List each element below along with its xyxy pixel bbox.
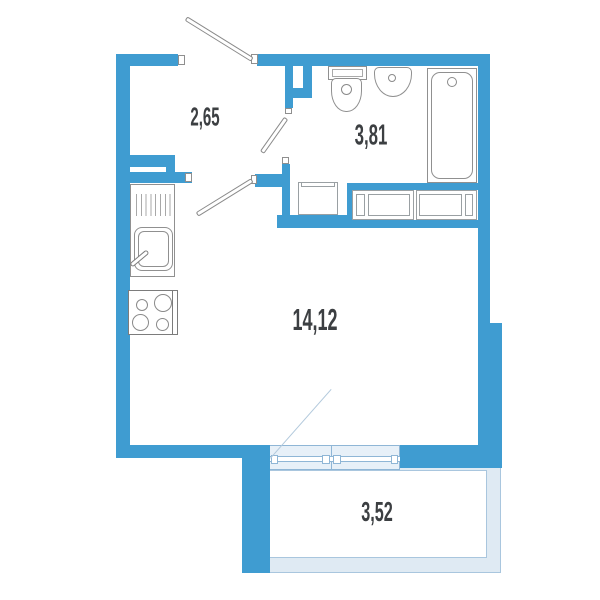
- bathroom-area-label: 3,81: [355, 120, 388, 153]
- stove-burner: [156, 318, 169, 331]
- kitchen-drainboard: [136, 194, 171, 216]
- wardrobe-right-section-small: [465, 194, 473, 216]
- wall-bath-partition-left: [285, 60, 293, 108]
- wall-wardrobe-bottom: [352, 220, 478, 228]
- toilet-tank-inner: [332, 69, 363, 77]
- bathroom-door-leaf: [260, 117, 288, 154]
- balcony-area-label: 3,52: [361, 496, 393, 528]
- wall-bath-bottom: [277, 215, 353, 228]
- stove-edge-line: [172, 290, 173, 335]
- living-room-area-label: 14,12: [293, 302, 338, 338]
- wall-right-upper: [478, 54, 490, 323]
- window-frame-cap: [391, 455, 398, 464]
- stove-burner: [154, 294, 172, 312]
- bathroom-sink: [374, 67, 412, 97]
- floor-plan: 2,65 3,81 14,12 3,52: [0, 0, 600, 600]
- wall-bath-lower-horizontal: [255, 174, 290, 187]
- door-jamb: [185, 173, 192, 182]
- window-frame-cap: [322, 455, 330, 464]
- stove-burner: [132, 314, 149, 331]
- sink-faucet: [388, 74, 396, 82]
- bathtub-drain: [447, 77, 457, 87]
- stove-burner: [136, 299, 148, 311]
- wall-balcony-top-right: [400, 445, 478, 468]
- wall-right-lower: [478, 323, 502, 468]
- wardrobe-left-section-large: [368, 194, 410, 216]
- interior-door-leaf: [196, 178, 254, 216]
- wall-balcony-left: [242, 445, 270, 573]
- wardrobe-left-section-small: [356, 194, 365, 216]
- wall-bath-lower-vertical: [282, 164, 290, 215]
- window-frame-cap: [333, 455, 341, 464]
- toilet-drain: [341, 84, 352, 95]
- kitchen-sink-basin: [138, 231, 169, 267]
- wall-wardrobe-top: [353, 183, 478, 190]
- wall-left: [116, 54, 130, 458]
- door-jamb: [282, 157, 289, 164]
- wall-bath-partition-arm: [293, 88, 312, 98]
- door-jamb: [178, 55, 185, 65]
- bathtub-basin: [431, 72, 473, 179]
- wardrobe-right-section-large: [419, 194, 462, 216]
- wall-kitchen-partition-lower: [130, 172, 192, 183]
- hallway-area-label: 2,65: [190, 102, 219, 133]
- entrance-door-leaf: [185, 16, 254, 61]
- door-jamb: [285, 108, 292, 114]
- washing-machine-panel: [301, 182, 335, 187]
